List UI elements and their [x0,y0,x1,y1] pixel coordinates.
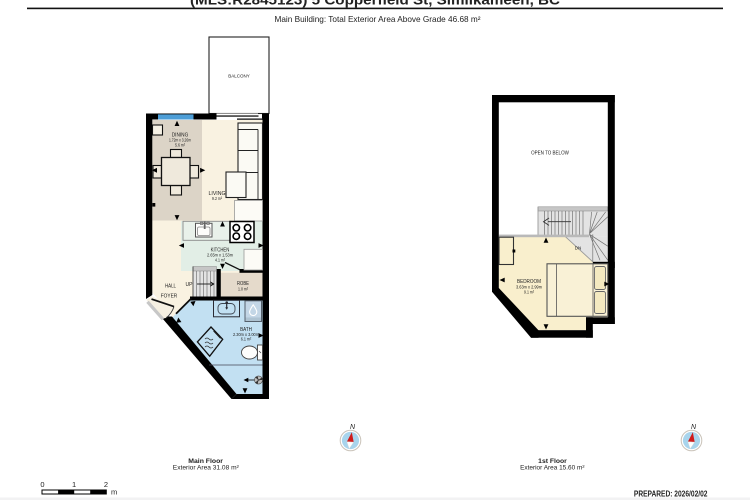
svg-text:2: 2 [104,480,108,489]
svg-text:0: 0 [40,480,44,489]
svg-text:1.0 m²: 1.0 m² [238,287,248,292]
svg-text:(MLS:R2845123) 5 Copperfield S: (MLS:R2845123) 5 Copperfield St, Similka… [190,0,560,8]
svg-text:FOYER: FOYER [161,294,178,300]
svg-text:HALL: HALL [165,284,176,290]
svg-text:UP: UP [186,282,194,288]
svg-text:PREPARED: 2026/02/02: PREPARED: 2026/02/02 [634,488,708,498]
svg-text:m: m [111,488,117,497]
svg-text:N: N [691,424,697,431]
svg-text:4.1 m²: 4.1 m² [215,258,225,263]
svg-text:Exterior Area 31.08 m²: Exterior Area 31.08 m² [173,465,240,472]
svg-text:N: N [350,424,356,431]
svg-text:9.2 m²: 9.2 m² [212,196,222,201]
svg-text:1: 1 [72,480,76,489]
svg-text:5.6 m²: 5.6 m² [175,143,185,148]
svg-text:Main Building: Total Exterior: Main Building: Total Exterior Area Above… [275,15,481,24]
svg-text:9.1 m²: 9.1 m² [524,290,534,295]
svg-text:BALCONY: BALCONY [228,73,250,79]
svg-text:Exterior Area 15.60 m²: Exterior Area 15.60 m² [520,465,585,472]
svg-text:6.1 m²: 6.1 m² [241,337,252,342]
svg-text:OPEN TO BELOW: OPEN TO BELOW [531,151,569,157]
svg-text:DN: DN [575,246,582,251]
